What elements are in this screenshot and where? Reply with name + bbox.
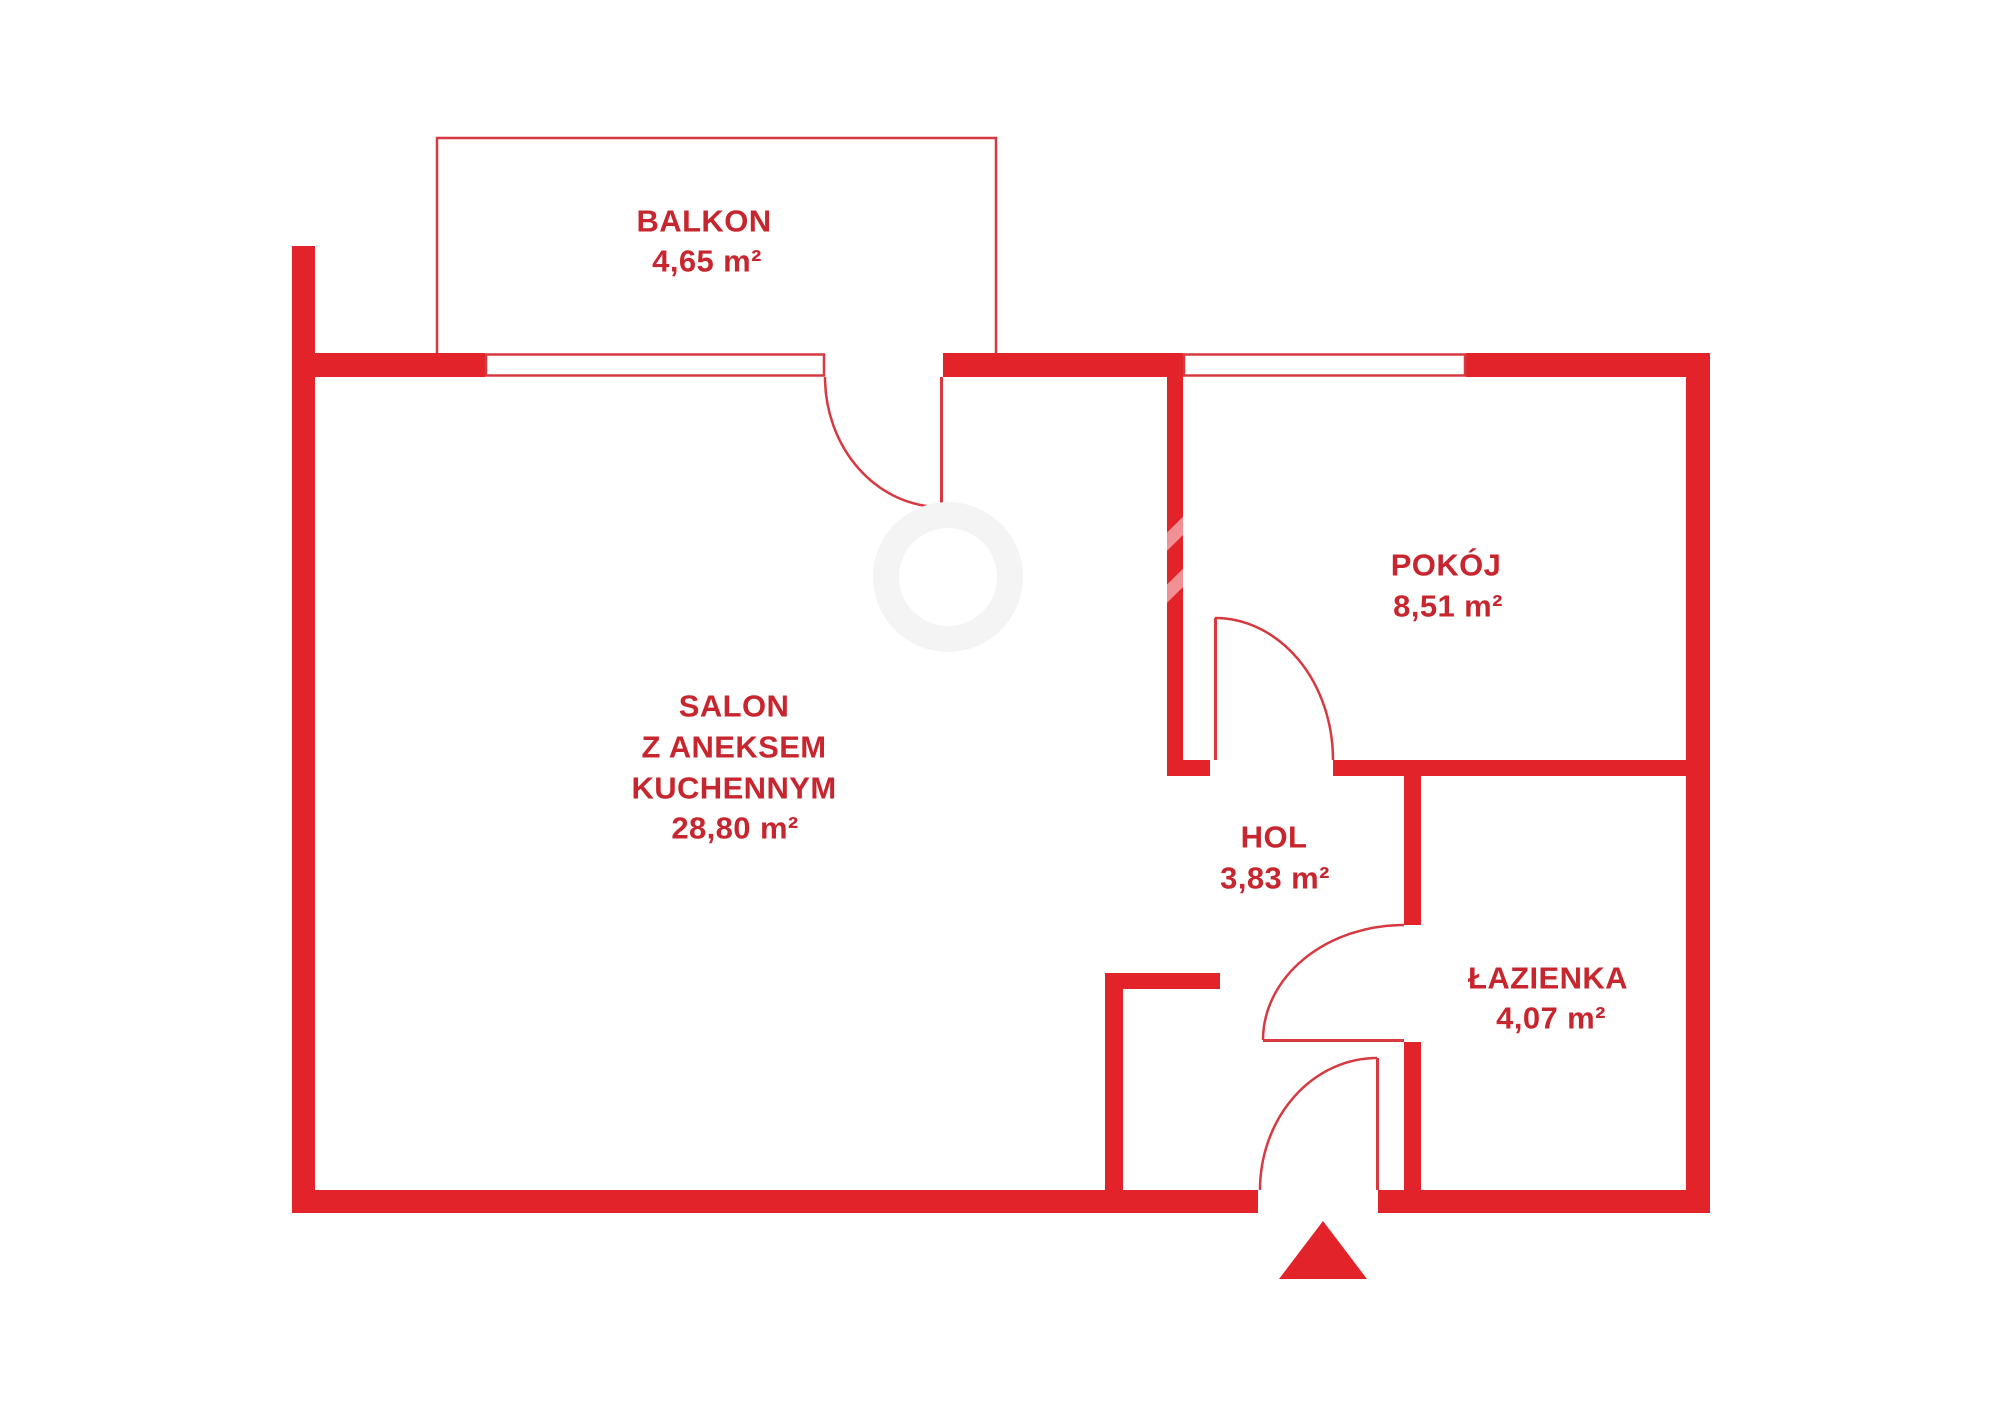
wall-pokoj-lazienka (1333, 760, 1686, 776)
wall-left (292, 246, 315, 1213)
room-area-pokoj: 8,51 m² (1393, 591, 1503, 622)
entrance-door-arc (1260, 1058, 1377, 1190)
room-area-hol: 3,83 m² (1220, 863, 1330, 894)
wall-top-segment-b (943, 353, 1183, 377)
wall-divider-stub (1167, 760, 1210, 776)
wall-bottom-segment-a (292, 1190, 1258, 1213)
entrance-arrow-icon (1279, 1221, 1367, 1279)
wall-top-segment-a (292, 353, 485, 377)
balcony-door-arc (825, 377, 941, 507)
room-label-hol: HOL (1241, 822, 1308, 853)
room-area-lazienka: 4,07 m² (1496, 1003, 1606, 1034)
wall-hol-lazienka-upper (1404, 776, 1421, 925)
wall-bottom-segment-b (1378, 1190, 1710, 1213)
room-label-salon-line2: Z ANEKSEM (641, 732, 826, 763)
window-salon (486, 355, 824, 376)
wall-hol-lazienka-lower (1404, 1042, 1421, 1190)
floor-plan: BALKON 4,65 m² SALON Z ANEKSEM KUCHENNYM… (0, 0, 2000, 1416)
room-area-balkon: 4,65 m² (652, 246, 762, 277)
wall-salon-hol (1105, 989, 1123, 1190)
room-label-salon-line3: KUCHENNYM (631, 773, 836, 804)
room-label-balkon: BALKON (637, 206, 772, 237)
wall-top-segment-c (1466, 353, 1710, 377)
wall-kitchen-cap (1105, 973, 1220, 989)
room-label-lazienka: ŁAZIENKA (1468, 963, 1628, 994)
wall-right (1686, 353, 1710, 1213)
room-label-salon-line1: SALON (679, 691, 790, 722)
lazienka-door-arc (1263, 925, 1404, 1040)
room-area-salon: 28,80 m² (671, 813, 798, 844)
pokoj-door-arc (1215, 618, 1333, 760)
room-label-pokoj: POKÓJ (1391, 550, 1502, 581)
window-pokoj (1184, 355, 1465, 376)
floor-plan-drawing (0, 0, 2000, 1416)
